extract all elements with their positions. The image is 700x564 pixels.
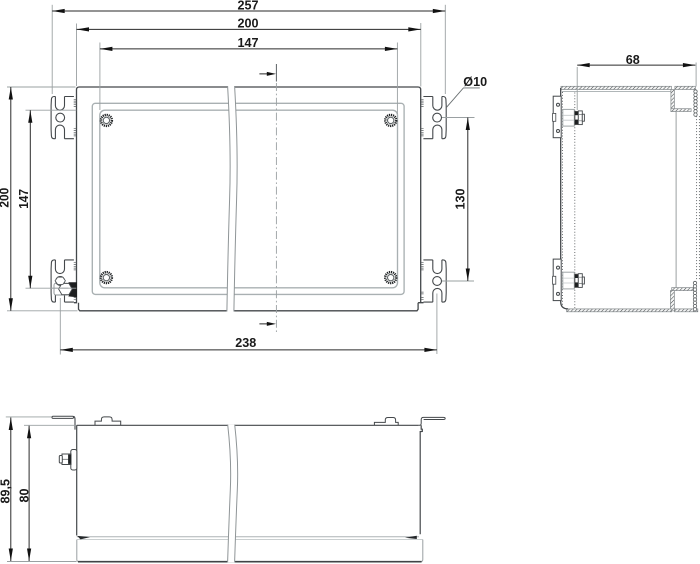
svg-text:147: 147	[17, 189, 31, 209]
svg-text:200: 200	[237, 16, 258, 30]
svg-text:130: 130	[454, 188, 468, 209]
svg-text:68: 68	[626, 53, 640, 67]
svg-text:89,5: 89,5	[0, 479, 13, 504]
svg-text:200: 200	[0, 188, 12, 208]
svg-text:Ø10: Ø10	[463, 75, 487, 89]
svg-text:238: 238	[235, 336, 256, 350]
svg-text:80: 80	[17, 488, 31, 502]
svg-text:147: 147	[237, 36, 258, 50]
svg-text:257: 257	[237, 0, 258, 12]
